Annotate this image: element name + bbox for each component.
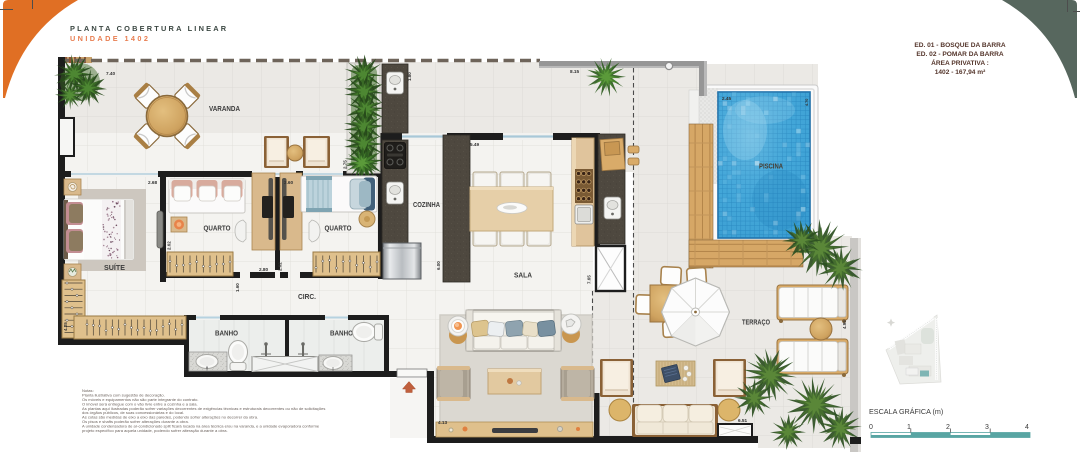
svg-text:2.45: 2.45 [722, 96, 732, 101]
svg-text:0: 0 [869, 424, 873, 431]
svg-text:VARANDA: VARANDA [209, 104, 240, 113]
svg-text:2.62: 2.62 [278, 262, 283, 271]
svg-text:ED. 02 - POMAR DA BARRA: ED. 02 - POMAR DA BARRA [916, 51, 1004, 58]
svg-text:QUARTO: QUARTO [325, 224, 352, 233]
svg-text:ESCALA GRÁFICA (m): ESCALA GRÁFICA (m) [869, 407, 943, 416]
svg-text:4: 4 [1025, 424, 1029, 431]
svg-text:4.70: 4.70 [805, 99, 809, 106]
svg-text:TERRAÇO: TERRAÇO [742, 318, 770, 327]
svg-text:1402 - 167,94 m²: 1402 - 167,94 m² [935, 69, 986, 76]
svg-text:PLANTA COBERTURA LINEAR: PLANTA COBERTURA LINEAR [70, 24, 228, 33]
svg-text:2: 2 [946, 424, 950, 431]
svg-text:COZINHA: COZINHA [413, 200, 440, 209]
svg-text:PISCINA: PISCINA [759, 162, 783, 171]
svg-text:6.00: 6.00 [436, 261, 441, 270]
svg-text:BANHO: BANHO [330, 329, 353, 338]
svg-text:6.51: 6.51 [738, 418, 748, 423]
svg-text:8.15: 8.15 [570, 69, 580, 74]
svg-text:4.25: 4.25 [63, 322, 68, 331]
svg-text:5.49: 5.49 [470, 142, 480, 147]
svg-text:4.95: 4.95 [842, 320, 847, 329]
svg-text:CIRC.: CIRC. [298, 292, 316, 301]
svg-text:2.60: 2.60 [284, 180, 294, 185]
svg-text:3: 3 [985, 424, 989, 431]
svg-text:1.60: 1.60 [235, 283, 240, 292]
svg-text:UNIDADE 1402: UNIDADE 1402 [70, 34, 150, 43]
svg-text:2.75: 2.75 [343, 160, 348, 169]
svg-text:ED. 01 - BOSQUE DA BARRA: ED. 01 - BOSQUE DA BARRA [914, 42, 1006, 49]
svg-text:2.80: 2.80 [259, 267, 269, 272]
svg-text:2.62: 2.62 [167, 241, 172, 250]
svg-text:SUÍTE: SUÍTE [104, 263, 125, 272]
svg-text:QUARTO: QUARTO [204, 224, 231, 233]
svg-text:ÁREA PRIVATIVA :: ÁREA PRIVATIVA : [931, 58, 989, 67]
svg-text:projeto específico para aquela: projeto específico para aquela unidade, … [82, 428, 228, 433]
svg-text:4.13: 4.13 [438, 420, 448, 425]
svg-text:2.68: 2.68 [148, 180, 158, 185]
svg-text:7.65: 7.65 [587, 275, 592, 284]
svg-text:BANHO: BANHO [215, 329, 238, 338]
svg-text:7.40: 7.40 [106, 71, 116, 76]
svg-text:SALA: SALA [514, 271, 532, 280]
